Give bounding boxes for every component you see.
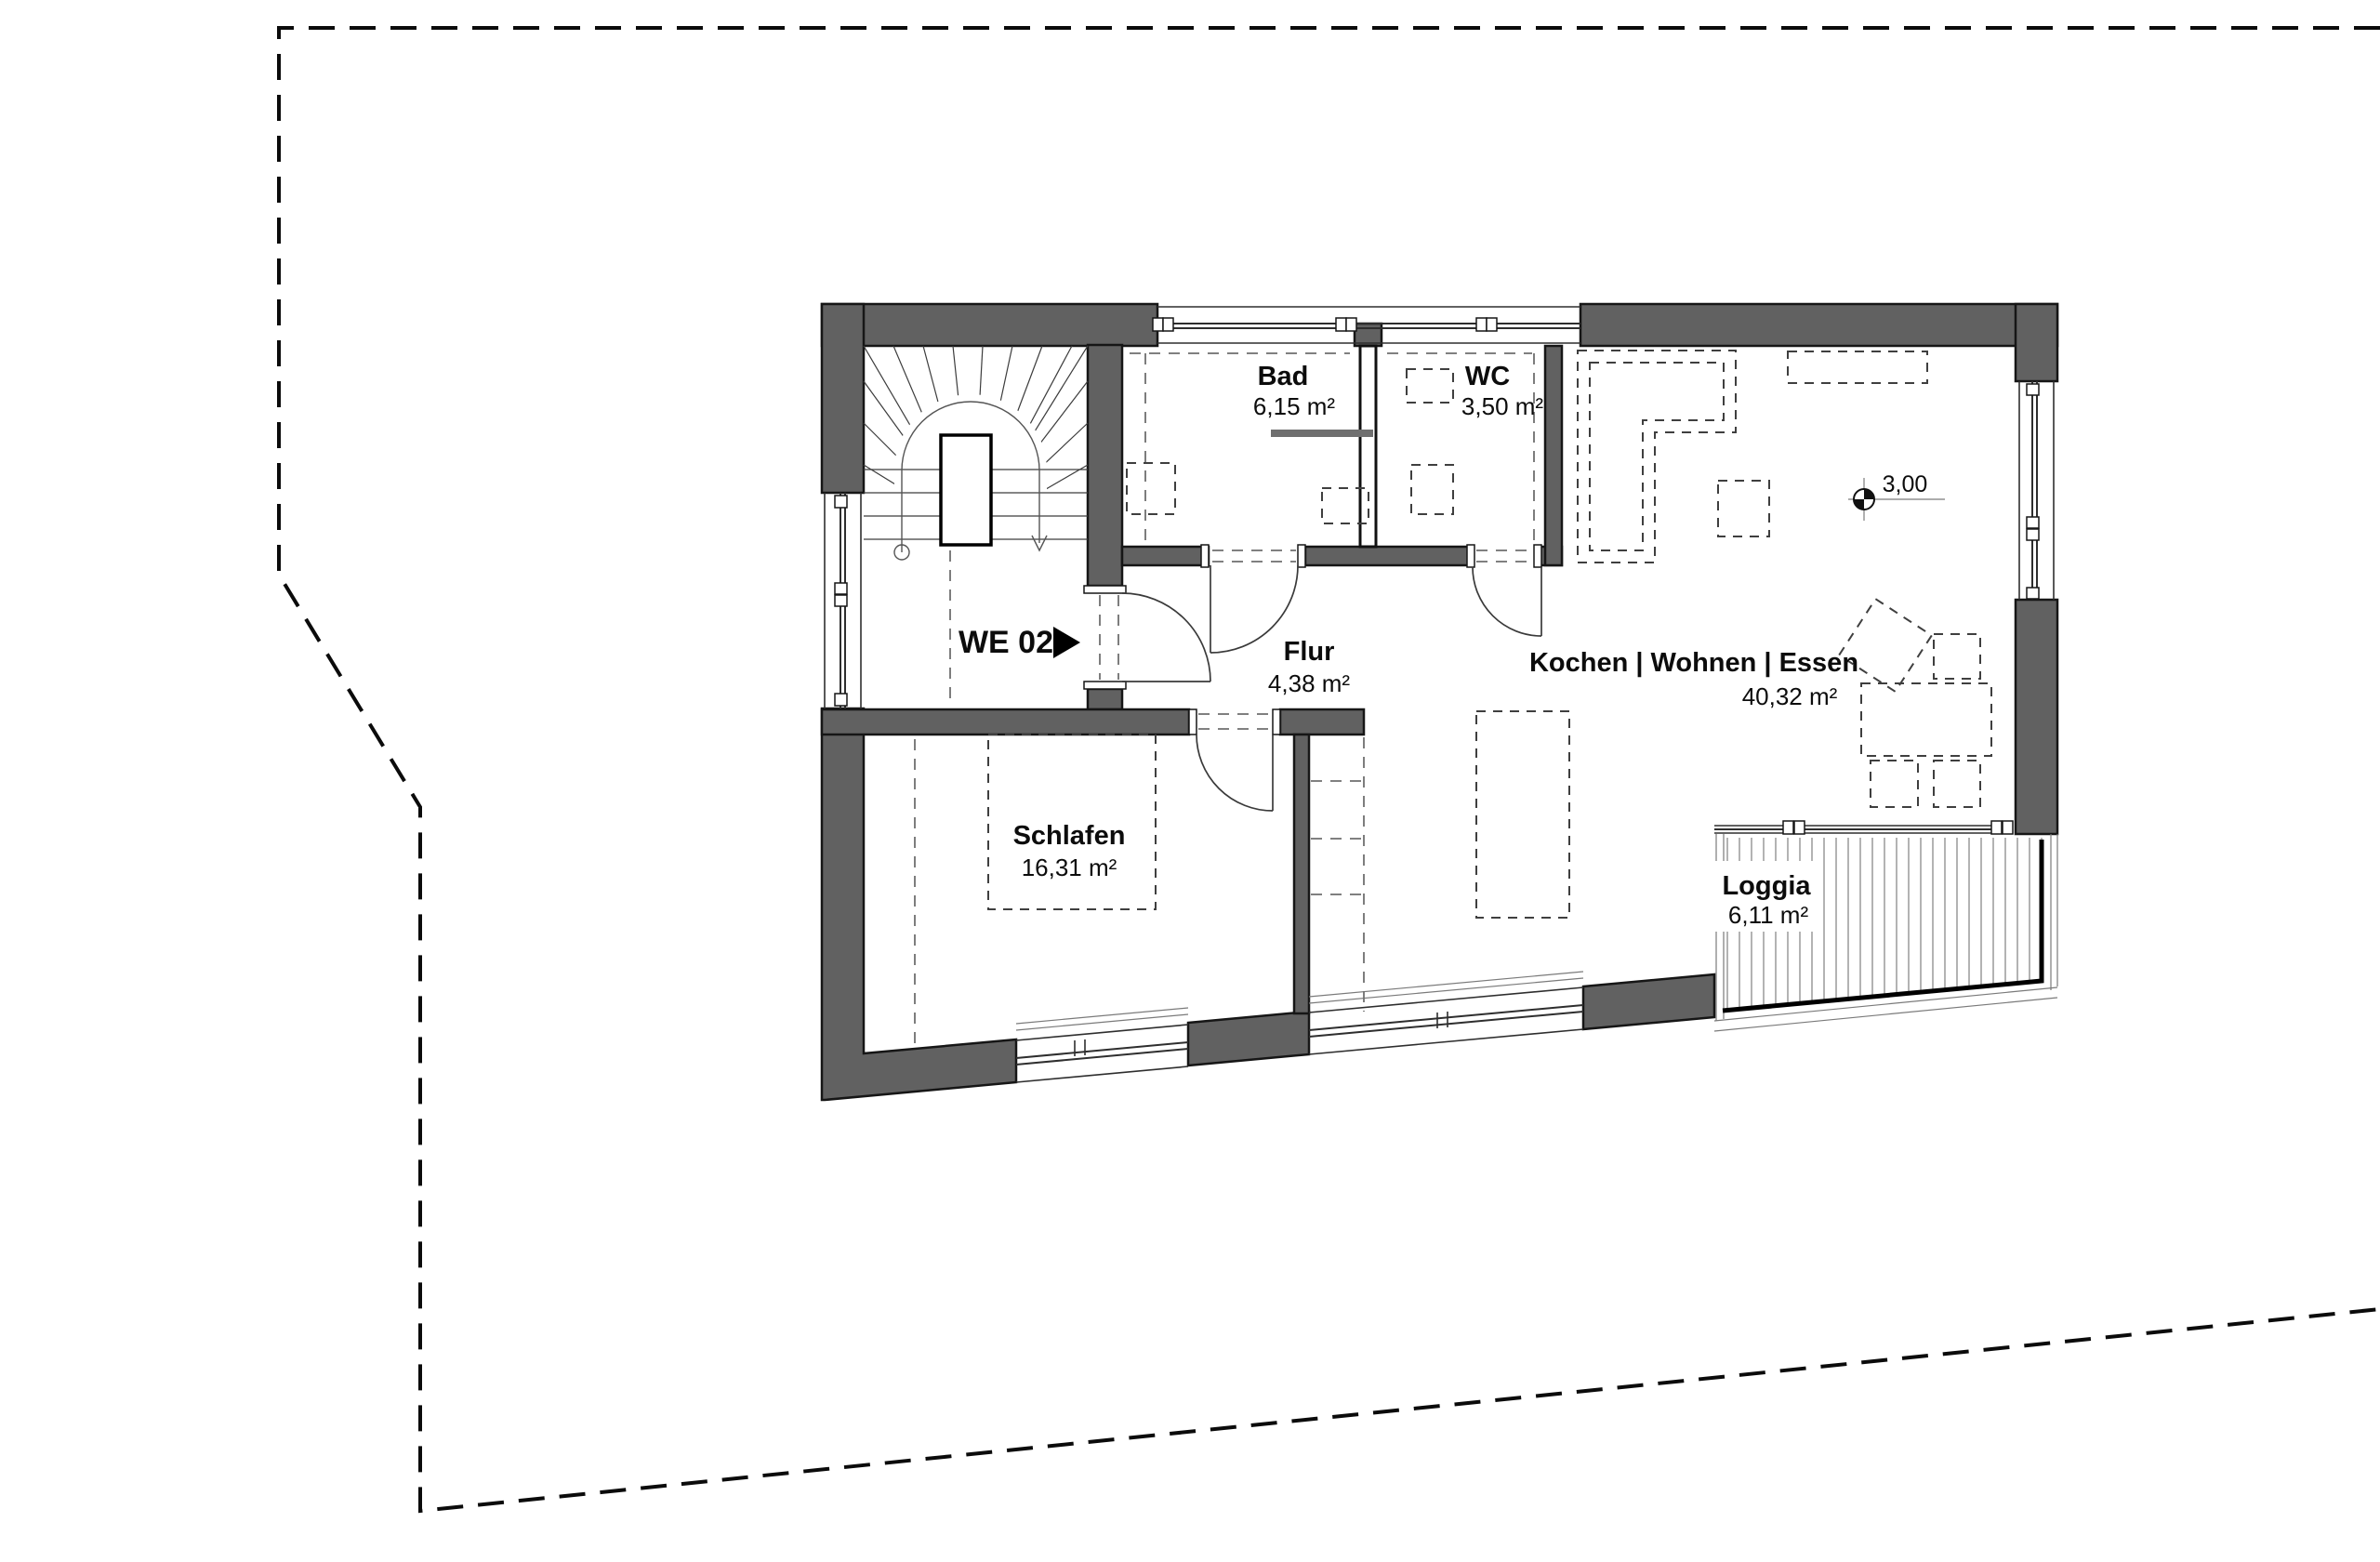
room-label-wohnen: Kochen | Wohnen | Essen bbox=[1529, 648, 1858, 678]
floor-plan-page: Bad 6,15 m² WC 3,50 m² Kochen | Wohnen |… bbox=[0, 0, 2380, 1562]
dining-chair bbox=[1871, 761, 1918, 807]
entrance-marker: WE 02 bbox=[959, 625, 1080, 660]
kitchen-counter bbox=[1578, 351, 1736, 563]
window-loggia bbox=[1714, 821, 2013, 834]
window-south-wohnen bbox=[1309, 972, 1583, 1054]
kitchen-sideboard bbox=[1788, 351, 1927, 383]
entry-door-swing bbox=[1122, 593, 1210, 682]
room-area-loggia: 6,11 m² bbox=[1728, 901, 1809, 929]
room-label-loggia: Loggia bbox=[1722, 871, 1811, 901]
dining-table bbox=[1861, 683, 1991, 756]
level-marker: 3,00 bbox=[1848, 471, 1945, 521]
kitchen-block bbox=[1718, 481, 1769, 536]
wc-toilet bbox=[1411, 465, 1453, 514]
flur-wardrobe bbox=[1311, 737, 1364, 1012]
site-boundary bbox=[279, 28, 2380, 1511]
staircase bbox=[864, 346, 1088, 560]
dining-chair bbox=[1934, 634, 1980, 679]
kitchen-island bbox=[1476, 711, 1569, 918]
room-area-bad: 6,15 m² bbox=[1253, 392, 1335, 420]
loggia bbox=[1711, 834, 2057, 1031]
stair-void bbox=[941, 435, 991, 545]
wc-door-swing bbox=[1473, 567, 1541, 636]
room-area-wc: 3,50 m² bbox=[1461, 392, 1543, 420]
window-west bbox=[825, 493, 861, 708]
bad-washer bbox=[1127, 463, 1175, 514]
kitchen-counter-inner bbox=[1590, 363, 1724, 550]
room-label-bad: Bad bbox=[1258, 362, 1309, 391]
level-value: 3,00 bbox=[1883, 471, 1928, 497]
room-label-schlafen: Schlafen bbox=[1013, 821, 1126, 851]
window-south-schlafen bbox=[1016, 1008, 1188, 1082]
window-east bbox=[2019, 381, 2054, 600]
dining-chair bbox=[1934, 761, 1980, 807]
unit-label: WE 02 bbox=[959, 625, 1053, 660]
entrance-arrow-icon bbox=[1053, 627, 1080, 658]
wc-sink bbox=[1407, 369, 1453, 403]
schlafen-door-swing bbox=[1197, 735, 1273, 811]
floor-plan-drawing: Bad 6,15 m² WC 3,50 m² Kochen | Wohnen |… bbox=[0, 0, 2380, 1562]
room-area-wohnen: 40,32 m² bbox=[1742, 682, 1838, 710]
room-labels: Bad 6,15 m² WC 3,50 m² Kochen | Wohnen |… bbox=[1013, 362, 1858, 929]
room-area-schlafen: 16,31 m² bbox=[1022, 854, 1117, 881]
room-label-flur: Flur bbox=[1284, 637, 1335, 667]
room-label-wc: WC bbox=[1465, 362, 1510, 391]
room-area-flur: 4,38 m² bbox=[1268, 669, 1350, 697]
